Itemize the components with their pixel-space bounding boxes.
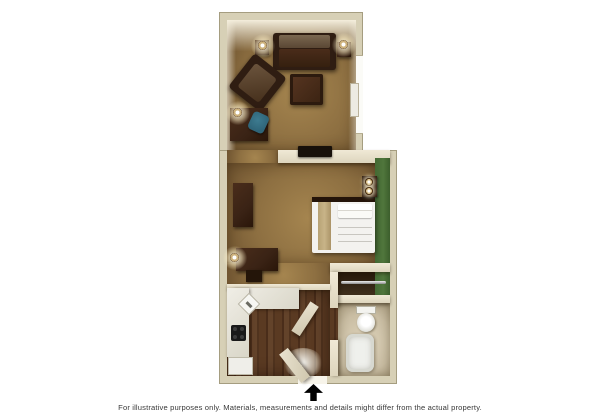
bed-pillows [338,204,372,218]
closet-wall-bottom [330,295,390,303]
green-accent-wall [375,158,390,295]
hall-bathroom-wall-lower [330,340,338,376]
wall-ac-unit [350,83,359,117]
dresser [233,183,253,227]
cooktop [231,325,246,341]
armchair-cushion [237,63,277,103]
nightstand-lamp-icon [365,187,373,195]
writing-desk-lamp-icon [230,253,239,262]
bathtub [346,334,374,372]
tv-on-divider-wall [298,146,332,157]
closet-wall-top [330,263,390,272]
sofa [273,33,336,70]
desk-lamp-icon [233,108,242,117]
disclaimer-text: For illustrative purposes only. Material… [0,403,600,412]
table-lamp-icon [258,41,267,50]
toilet [357,313,375,332]
sofa-back-cushions [279,35,330,48]
living-bedroom-divider-wall [278,150,390,163]
nightstand-lamp-icon [365,178,373,186]
bed [312,197,375,253]
closet-rod [341,281,386,284]
bed-runner [318,202,331,250]
table-lamp-icon [339,40,348,49]
refrigerator [228,357,253,375]
bathroom-doorway-floor [330,308,338,340]
coffee-table [290,74,323,105]
floor-plan-canvas: For illustrative purposes only. Material… [0,0,600,420]
stool [246,270,262,282]
sofa-seat [279,49,330,67]
bed-fold-lines [338,221,372,247]
entrance-arrow-icon [304,384,323,401]
hall-bathroom-wall-upper [330,272,338,308]
passage-floor [227,150,278,164]
